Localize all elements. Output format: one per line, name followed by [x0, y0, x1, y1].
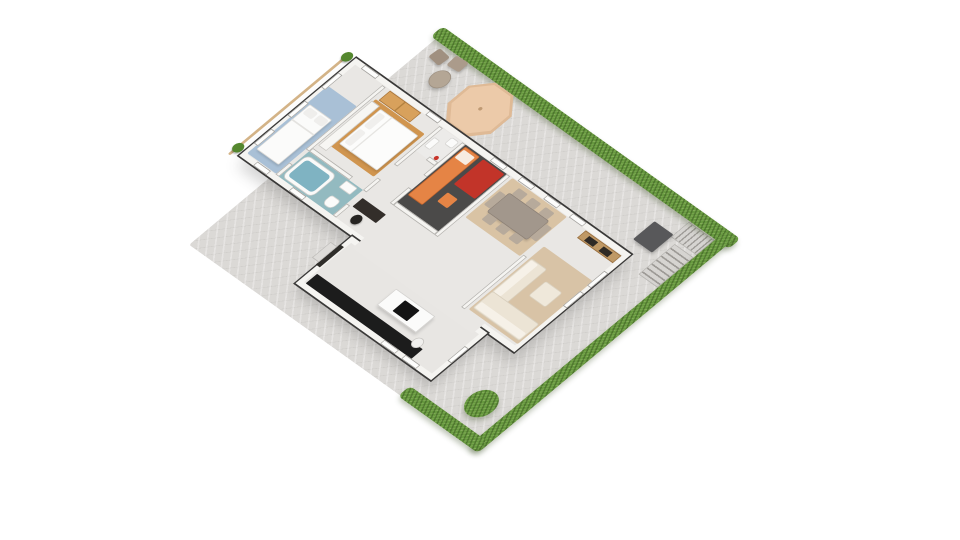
floorplan-render-canvas: [0, 0, 960, 540]
